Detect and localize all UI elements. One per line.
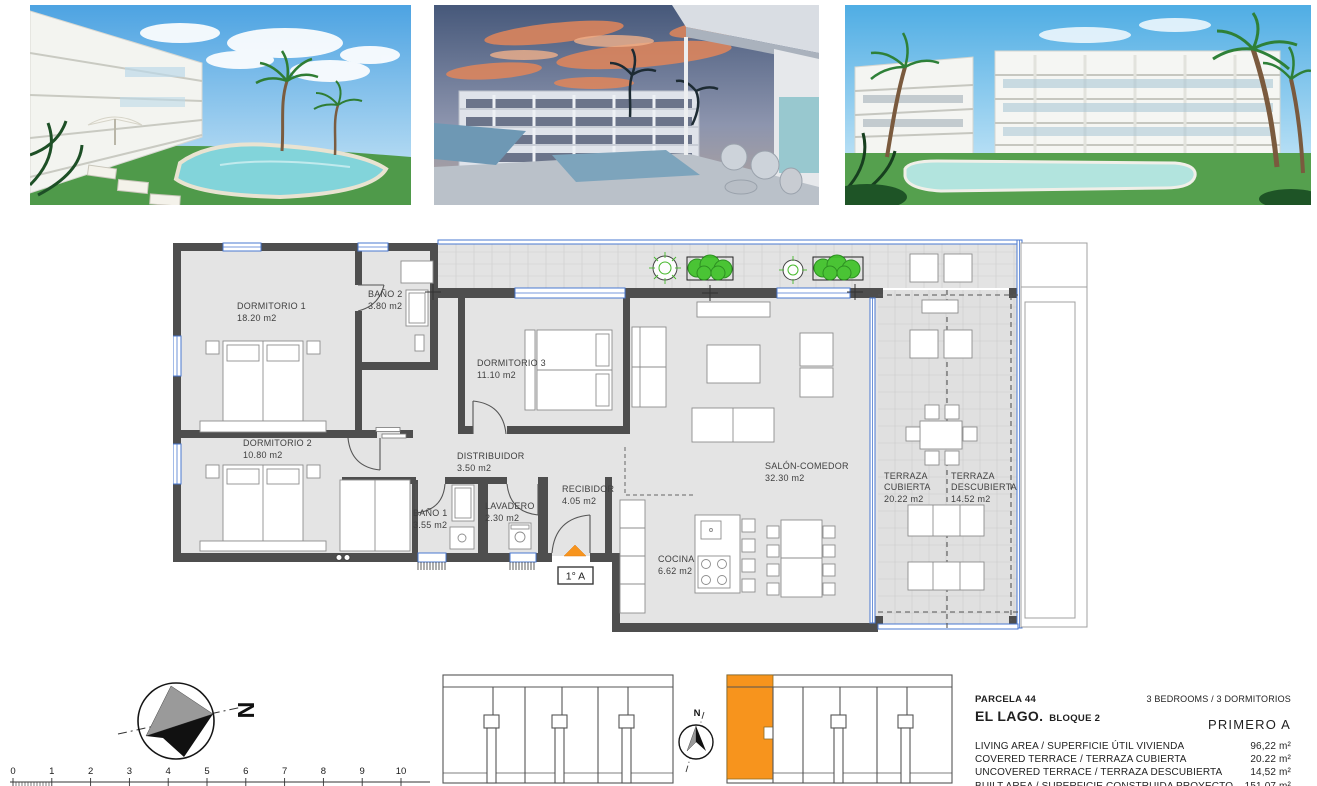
room-label: DORMITORIO 3 bbox=[477, 358, 546, 368]
scale-tick: 7 bbox=[282, 766, 287, 777]
site-north-compass-icon: N bbox=[679, 708, 713, 772]
photo-building-pool-front bbox=[845, 5, 1311, 205]
scale-tick: 0 bbox=[10, 766, 15, 777]
building-block-right bbox=[995, 51, 1280, 155]
room-label: LAVADERO bbox=[485, 501, 535, 511]
scale-tick: 9 bbox=[360, 766, 365, 777]
room-label: SALÓN-COMEDOR bbox=[765, 461, 849, 471]
room-label: CUBIERTA bbox=[884, 482, 931, 492]
room-label: DORMITORIO 1 bbox=[237, 301, 306, 311]
area-label: COVERED TERRACE / TERRAZA CUBIERTA bbox=[975, 753, 1187, 766]
room-label: RECIBIDOR bbox=[562, 484, 615, 494]
areas-table: LIVING AREA / SUPERFICIE ÚTIL VIVIENDA 9… bbox=[975, 740, 1291, 786]
photo-terrace-sunset bbox=[434, 5, 819, 205]
vents bbox=[418, 562, 534, 570]
unit-info-panel: PARCELA 44 3 BEDROOMS / 3 DORMITORIOS EL… bbox=[975, 694, 1291, 786]
room-label: COCINA bbox=[658, 554, 695, 564]
site-north-label: N bbox=[694, 708, 701, 719]
area-row: UNCOVERED TERRACE / TERRAZA DESCUBIERTA … bbox=[975, 766, 1291, 779]
parcela-label: PARCELA 44 bbox=[975, 694, 1036, 705]
area-value: 14,52 m² bbox=[1250, 766, 1291, 779]
scale-tick: 10 bbox=[396, 766, 407, 777]
room-label: DISTRIBUIDOR bbox=[457, 451, 525, 461]
room-area: 4.05 m2 bbox=[562, 496, 596, 506]
compass-north-label: N bbox=[233, 702, 259, 719]
floorplan: 1° A DORMITORIO 1 18.20 m2 BAÑO 2 3.80 m… bbox=[173, 238, 1088, 634]
room-area: 2.30 m2 bbox=[485, 513, 519, 523]
area-value: 96,22 m² bbox=[1250, 740, 1291, 753]
area-value: 151.07 m² bbox=[1245, 780, 1291, 786]
pool bbox=[905, 161, 1195, 191]
room-label: BAÑO 1 bbox=[413, 508, 448, 518]
room-area: 11.10 m2 bbox=[477, 370, 516, 380]
unit-label: 1° A bbox=[566, 571, 585, 583]
room-label: DORMITORIO 2 bbox=[243, 438, 312, 448]
north-compass-icon: N bbox=[118, 683, 259, 759]
room-area: 3.80 m2 bbox=[368, 301, 402, 311]
room-label: BAÑO 2 bbox=[368, 289, 403, 299]
scale-bar: 0 1 2 3 4 5 6 7 8 9 10 bbox=[10, 766, 430, 786]
project-name: EL LAGO. bbox=[975, 708, 1043, 724]
room-area: 14.52 m2 bbox=[951, 494, 991, 504]
neighbour-unit-outline bbox=[1021, 243, 1087, 627]
area-row: COVERED TERRACE / TERRAZA CUBIERTA 20.22… bbox=[975, 753, 1291, 766]
building-block-left bbox=[855, 57, 973, 155]
scale-tick: 1 bbox=[49, 766, 54, 777]
room-area: 6.62 m2 bbox=[658, 566, 692, 576]
area-value: 20.22 m² bbox=[1250, 753, 1291, 766]
scale-tick: 4 bbox=[166, 766, 171, 777]
room-area: 32.30 m2 bbox=[765, 473, 805, 483]
area-row: LIVING AREA / SUPERFICIE ÚTIL VIVIENDA 9… bbox=[975, 740, 1291, 753]
room-area: 3.55 m2 bbox=[413, 520, 447, 530]
room-label: TERRAZA bbox=[884, 471, 928, 481]
scale-tick: 8 bbox=[321, 766, 326, 777]
area-label: UNCOVERED TERRACE / TERRAZA DESCUBIERTA bbox=[975, 766, 1222, 779]
room-area: 18.20 m2 bbox=[237, 313, 277, 323]
area-label: BUILT AREA / SUPERFICIE CONSTRUIDA PROYE… bbox=[975, 780, 1233, 786]
bedrooms-label: 3 BEDROOMS / 3 DORMITORIOS bbox=[1146, 694, 1291, 704]
highlighted-unit bbox=[727, 675, 773, 779]
site-block-left bbox=[443, 675, 673, 783]
room-area: 3.50 m2 bbox=[457, 463, 491, 473]
scale-tick: 2 bbox=[88, 766, 93, 777]
room-area: 20.22 m2 bbox=[884, 494, 924, 504]
room-area: 10.80 m2 bbox=[243, 450, 283, 460]
room-label: TERRAZA bbox=[951, 471, 995, 481]
scale-tick: 6 bbox=[243, 766, 248, 777]
scale-tick: 5 bbox=[204, 766, 209, 777]
floor-unit-label: PRIMERO A bbox=[1208, 717, 1291, 732]
room-label: DESCUBIERTA bbox=[951, 482, 1017, 492]
photo-pool-garden-day bbox=[30, 5, 411, 205]
site-block-right bbox=[727, 675, 952, 783]
brochure-page: 1° A DORMITORIO 1 18.20 m2 BAÑO 2 3.80 m… bbox=[0, 0, 1317, 786]
area-label: LIVING AREA / SUPERFICIE ÚTIL VIVIENDA bbox=[975, 740, 1184, 753]
scale-tick: 3 bbox=[127, 766, 132, 777]
area-row: BUILT AREA / SUPERFICIE CONSTRUIDA PROYE… bbox=[975, 780, 1291, 786]
block-label: BLOQUE 2 bbox=[1049, 713, 1100, 724]
